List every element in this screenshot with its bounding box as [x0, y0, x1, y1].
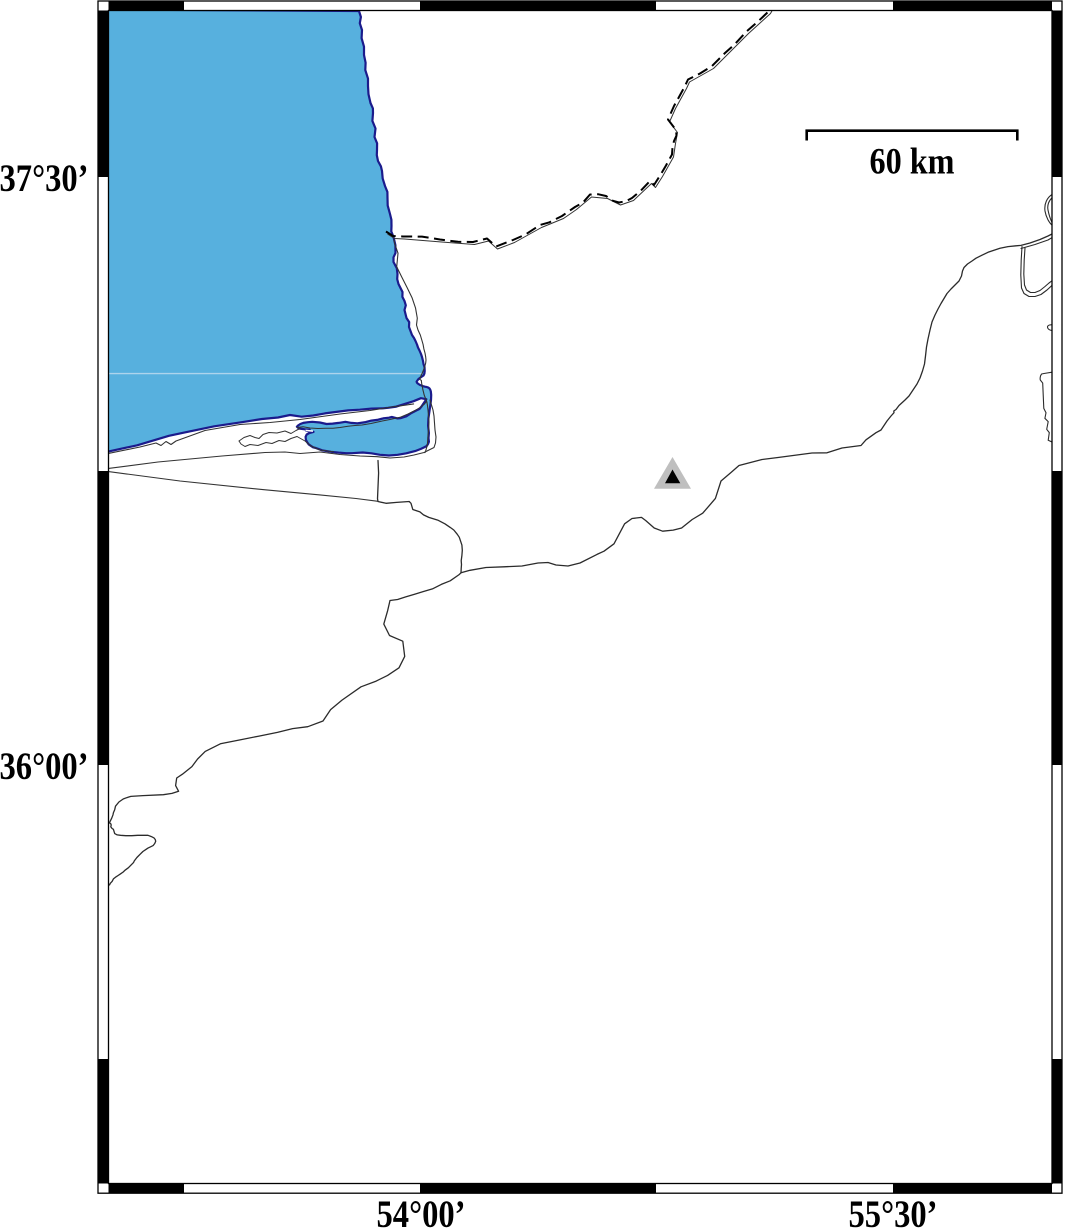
svg-text:36°00’: 36°00’	[0, 744, 89, 788]
svg-text:60 km: 60 km	[870, 142, 955, 183]
svg-text:37°30’: 37°30’	[0, 156, 89, 200]
svg-text:55°30’: 55°30’	[849, 1192, 938, 1229]
svg-text:54°00’: 54°00’	[377, 1192, 466, 1229]
